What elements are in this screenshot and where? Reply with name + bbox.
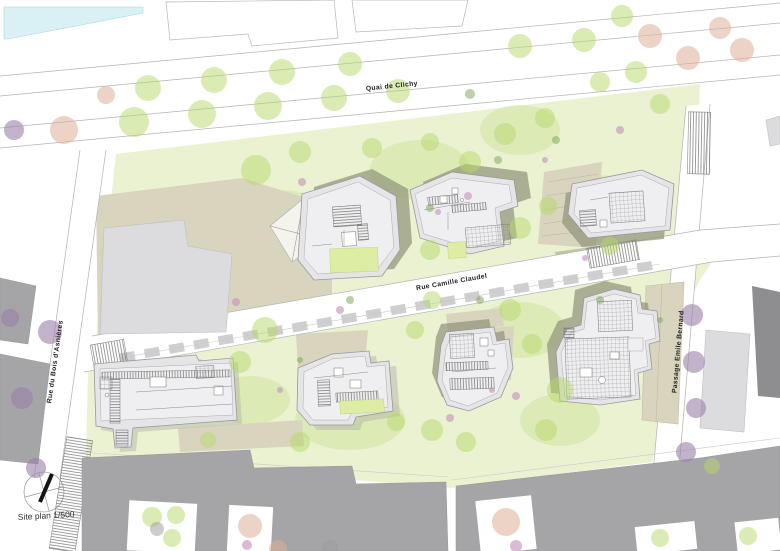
site-plan-svg: Quai de Clichy Rue Camille Claudel Rue d… [0,0,780,551]
site-plan-canvas: Quai de Clichy Rue Camille Claudel Rue d… [0,0,780,551]
river-water [4,7,143,39]
